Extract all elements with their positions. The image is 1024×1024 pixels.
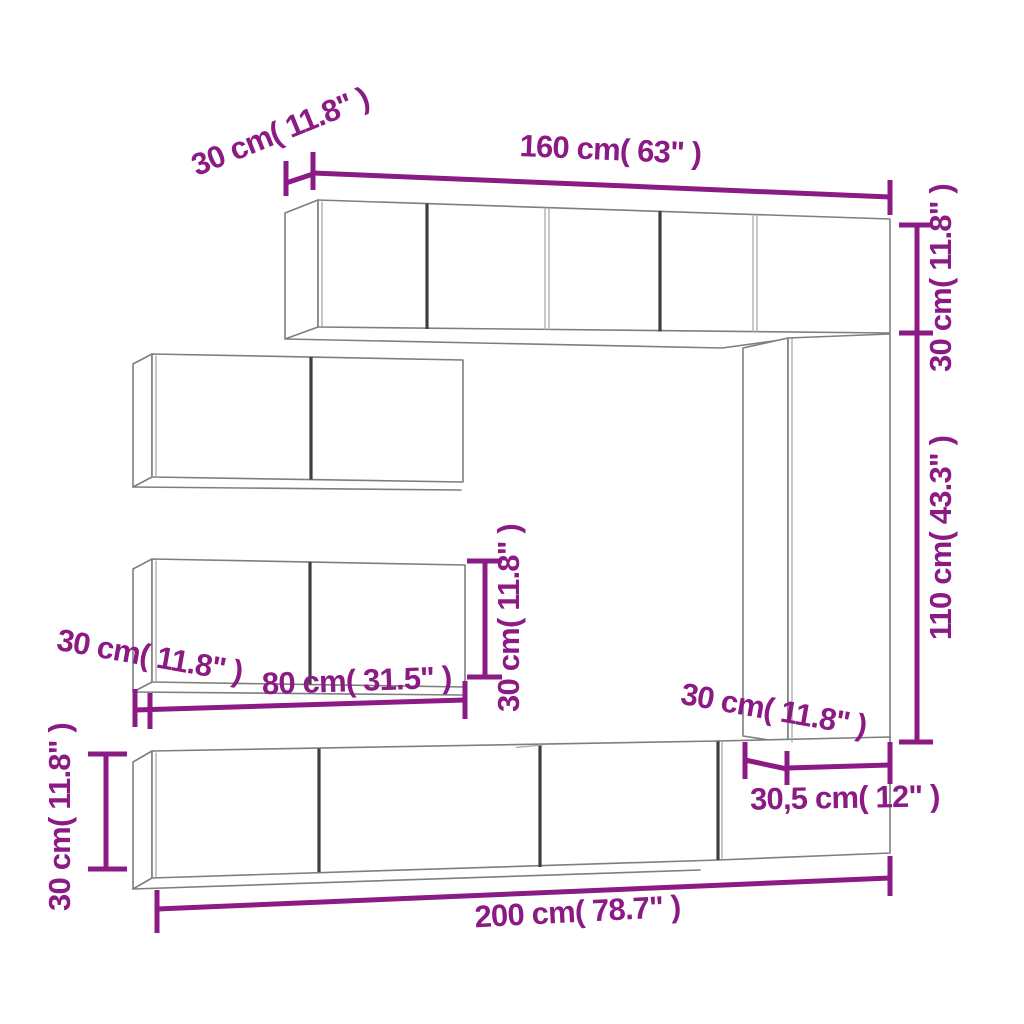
- top-cabinet-side-panel: [285, 200, 318, 339]
- dim-top-width-line: [313, 173, 890, 197]
- wall-cabinet-upper-front: [152, 354, 463, 482]
- product-dimension-diagram: 30 cm( 11.8" ) 160 cm( 63" ) 30 cm( 11.8…: [0, 0, 1024, 1024]
- label-upper-right-height: 30 cm( 11.8" ): [923, 184, 958, 372]
- dim-side-width-line: [787, 765, 890, 768]
- label-right-column-height: 110 cm( 43.3" ): [923, 436, 958, 640]
- label-wall-cabinet-width: 80 cm( 31.5" ): [261, 660, 452, 702]
- top-cabinet-underside: [285, 339, 788, 348]
- dim-top-depth-line: [286, 174, 313, 183]
- label-side-unit-width: 30,5 cm( 12" ): [750, 778, 940, 816]
- wall-cabinet-upper-side: [133, 354, 152, 487]
- top-cabinet-front-panel: [318, 200, 890, 333]
- wall-cabinet-upper-underside: [133, 487, 461, 490]
- diagram-canvas: 30 cm( 11.8" ) 160 cm( 63" ) 30 cm( 11.8…: [0, 0, 1024, 1024]
- label-wall-cabinet-height: 30 cm( 11.8" ): [491, 524, 526, 712]
- tall-cabinet-side-panel: [743, 338, 788, 743]
- tv-stand-front-panel: [152, 741, 718, 878]
- tall-cabinet-front-panel: [788, 334, 890, 743]
- label-top-depth: 30 cm( 11.8" ): [186, 80, 373, 183]
- label-top-width: 160 cm( 63" ): [519, 128, 702, 171]
- label-tv-stand-height: 30 cm( 11.8" ): [42, 723, 77, 911]
- dim-wall-width-line: [135, 700, 465, 710]
- tv-stand-side-panel: [133, 751, 152, 889]
